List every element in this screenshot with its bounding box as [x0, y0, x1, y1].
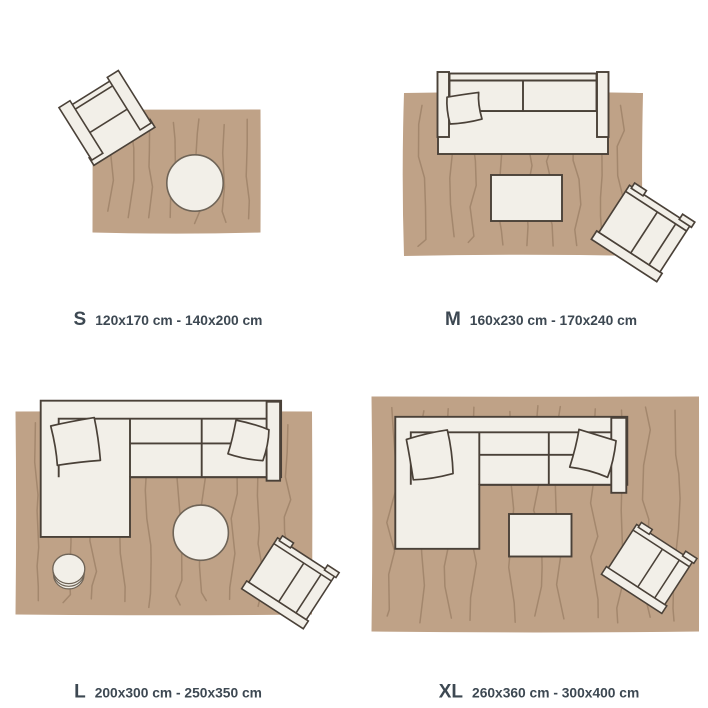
svg-text:S120x170 cm - 140x200 cm: S120x170 cm - 140x200 cm: [74, 309, 263, 330]
svg-text:XL260x360 cm - 300x400 cm: XL260x360 cm - 300x400 cm: [439, 681, 640, 702]
svg-text:M160x230 cm - 170x240 cm: M160x230 cm - 170x240 cm: [445, 309, 637, 330]
svg-text:L200x300 cm - 250x350 cm: L200x300 cm - 250x350 cm: [74, 681, 262, 702]
